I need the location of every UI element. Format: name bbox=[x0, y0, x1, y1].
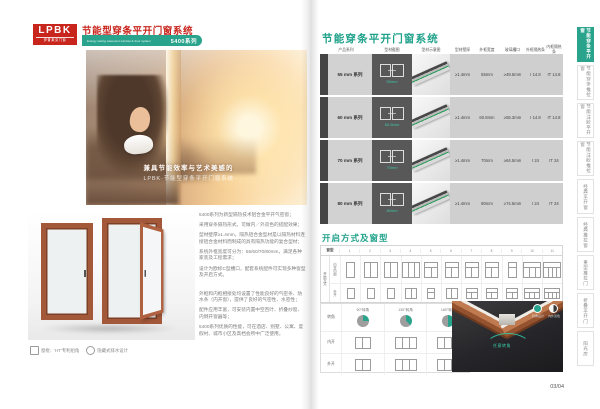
spec-value: ≥49.5mm bbox=[499, 72, 526, 77]
window-diagram bbox=[347, 288, 355, 299]
window-grid-cell bbox=[481, 256, 501, 283]
window-pane bbox=[509, 268, 516, 277]
window-diagram bbox=[523, 262, 541, 278]
window-pane bbox=[348, 289, 354, 298]
inward-opening-row: 内开内倒 bbox=[329, 256, 562, 283]
column-header: 玻璃槽口 bbox=[499, 48, 526, 53]
spec-value: ≥1.4mm bbox=[450, 72, 475, 77]
window-diagram bbox=[465, 262, 479, 278]
window-grid-cell bbox=[441, 284, 461, 302]
body-paragraph: 配件应用丰富，可安装内置中空百叶、折叠纱窗、内倒开窗器等； bbox=[199, 307, 306, 320]
window-grid-cell bbox=[441, 256, 461, 283]
window-pane bbox=[415, 263, 420, 277]
window-pane bbox=[368, 289, 374, 298]
feature-badge-label: 转角设计 bbox=[532, 314, 544, 318]
window-diagram bbox=[346, 262, 355, 278]
corner-angle-icon bbox=[533, 304, 542, 313]
body-paragraph: 5400系列优质的性能，可在酒店、别墅、公寓、度假村、城市小区及高档会所中广泛使… bbox=[199, 324, 306, 337]
window-grid-cell bbox=[502, 256, 522, 283]
window-pane bbox=[557, 293, 560, 298]
product-caption: 窗框：'HT'专利组角隐藏式排水设计 bbox=[30, 346, 128, 355]
spec-values: ≥1.4mm80mm≥74.5mmI 24IT 24 bbox=[450, 183, 563, 224]
window-type-code: 8 bbox=[481, 249, 501, 253]
window-diagram bbox=[355, 359, 371, 371]
window-handle bbox=[84, 270, 86, 277]
profile-sketch-icon bbox=[379, 148, 405, 164]
profile-3d-image bbox=[412, 104, 450, 128]
spec-value: ≥1.4mm bbox=[450, 158, 475, 163]
spec-value: I 14.8 bbox=[526, 72, 545, 77]
sidebar-tab: 折叠平开门 bbox=[577, 293, 594, 328]
sidebar-tab: 节能注胶推拉窗 bbox=[577, 141, 594, 176]
profile-photo-cell bbox=[412, 54, 450, 95]
angle-pie-icon bbox=[400, 315, 412, 327]
window-pane bbox=[410, 338, 416, 348]
window-diagram bbox=[544, 288, 560, 299]
feature-badge: 内外双色 bbox=[548, 304, 560, 318]
corner-joint-icon bbox=[30, 346, 39, 355]
product-photo bbox=[28, 210, 195, 340]
sidebar-tab: 节能穿条平开窗 bbox=[577, 27, 594, 62]
window-pane bbox=[536, 268, 541, 277]
body-paragraph: 5400系列为新型隔热技术铝合金平开气密窗； bbox=[199, 212, 306, 219]
brand-logo: LPBK 伊普莱克门窗 bbox=[33, 24, 77, 45]
window-diagram bbox=[424, 262, 438, 278]
casement-window-open-sash bbox=[140, 222, 163, 320]
window-pane bbox=[472, 293, 477, 298]
corner-joint-block bbox=[499, 314, 515, 325]
window-grid-cell bbox=[380, 284, 400, 302]
body-paragraph: 采用穿条隔热形式，可做内／外双色的搭配效果； bbox=[199, 222, 306, 229]
hero-caption-line1: 兼具节能效率与艺术美感的 bbox=[143, 162, 242, 172]
series-cell: 80 mm 系列 bbox=[328, 183, 372, 224]
window-grid-cell bbox=[461, 256, 481, 283]
window-grid-cell bbox=[340, 256, 360, 283]
window-type-code: 1 bbox=[339, 249, 359, 253]
window-type-grid: 窗型 1234567891011 开启方式 内开内倒 外开 bbox=[320, 245, 563, 303]
window-grid-cell bbox=[401, 256, 421, 283]
window-type-code: 10 bbox=[521, 249, 541, 253]
corner-type-table: 转角90°转角135°转角180°转角内开外开 bbox=[320, 303, 470, 373]
window-handle bbox=[144, 270, 145, 277]
window-grid-cell bbox=[542, 284, 562, 302]
product-caption-label: 隐藏式排水设计 bbox=[97, 348, 128, 354]
body-text: 5400系列为新型隔热技术铝合金平开气密窗；采用穿条隔热形式，可做内／外双色的搭… bbox=[199, 212, 306, 341]
sidebar-tab: 阳光房 bbox=[577, 331, 594, 366]
angle-arrow-label: 任意转角 bbox=[493, 343, 511, 349]
row-accent-strip bbox=[320, 97, 328, 138]
window-grid-cell bbox=[461, 284, 481, 302]
window-diagram bbox=[395, 359, 417, 371]
window-pane bbox=[347, 263, 354, 277]
spec-value: ≥74.5mm bbox=[499, 201, 526, 206]
spec-value: ≥64.5mm bbox=[499, 158, 526, 163]
spec-value: ≥55.3mm bbox=[499, 115, 526, 120]
outward-corner-row: 外开 bbox=[321, 353, 469, 375]
outward-opening-row: 外开 bbox=[329, 283, 562, 302]
spec-value: ≥1.4mm bbox=[450, 201, 475, 206]
corner-row-label: 转角 bbox=[321, 304, 341, 331]
table-row: 70 mm 系列70mm≥1.4mm70mm≥64.5mmI 24IT 24 bbox=[320, 140, 563, 181]
spec-value: I 24 bbox=[526, 158, 545, 163]
window-pane bbox=[403, 338, 410, 348]
window-pane bbox=[472, 268, 478, 277]
inward-corner-row: 内开 bbox=[321, 331, 469, 353]
column-header: 型材壁厚 bbox=[450, 48, 475, 53]
window-pane bbox=[513, 293, 518, 298]
window-diagram bbox=[367, 288, 375, 299]
spec-value: 80mm bbox=[475, 201, 499, 206]
corner-row-label: 内开 bbox=[321, 332, 341, 353]
window-pane bbox=[371, 263, 377, 277]
column-header: 型材示意图 bbox=[412, 48, 450, 53]
dual-color-icon bbox=[549, 304, 558, 313]
window-diagram bbox=[427, 288, 435, 299]
row-label-outward: 外开 bbox=[329, 284, 340, 302]
window-diagram bbox=[485, 262, 499, 278]
page-gutter bbox=[301, 0, 319, 409]
window-diagram bbox=[364, 262, 378, 278]
spec-value: 60.8mm bbox=[475, 115, 499, 120]
window-grid-cell bbox=[401, 284, 421, 302]
window-grid-cell bbox=[380, 256, 400, 283]
hero-caption: 兼具节能效率与艺术美感的 LPBK·节能型穿条平开门窗系统··· bbox=[143, 162, 242, 182]
hero-caption-line2: LPBK·节能型穿条平开门窗系统··· bbox=[143, 174, 242, 182]
window-pane bbox=[396, 338, 403, 348]
window-diagram bbox=[446, 288, 458, 299]
sidebar-tab: 节能穿条推拉窗 bbox=[577, 65, 594, 100]
feature-badge: 转角设计 bbox=[532, 304, 544, 318]
column-header: 型材截图 bbox=[372, 48, 412, 53]
spec-value: ≥1.4mm bbox=[450, 115, 475, 120]
dimension-label: 80mm bbox=[372, 208, 412, 213]
window-pane bbox=[396, 360, 403, 370]
window-grid-body: 开启方式 内开内倒 外开 bbox=[321, 256, 562, 302]
title-english-subtitle: Energy saving casement window & door sys… bbox=[87, 39, 151, 43]
profile-sketch-icon bbox=[379, 191, 405, 207]
window-diagram bbox=[466, 288, 478, 299]
window-grid-cell bbox=[360, 256, 380, 283]
window-pane bbox=[412, 289, 417, 298]
spec-values: ≥1.4mm60.8mm≥55.3mmI 14.8IT 14.8 bbox=[450, 97, 563, 138]
spec-values: ≥1.4mm70mm≥64.5mmI 24IT 24 bbox=[450, 140, 563, 181]
sidebar-tab: 节能注胶平开窗 bbox=[577, 103, 594, 138]
window-grid-cell bbox=[421, 256, 441, 283]
spec-value: 70mm bbox=[475, 158, 499, 163]
spec-value: IT 24 bbox=[545, 158, 563, 163]
sidebar-tab: 重型推拉门 bbox=[577, 255, 594, 290]
dimension-label: 60.8mm bbox=[372, 122, 412, 127]
window-grid-header: 窗型 1234567891011 bbox=[321, 246, 562, 256]
window-type-code: 9 bbox=[501, 249, 521, 253]
window-type-code: 3 bbox=[380, 249, 400, 253]
row-accent-strip bbox=[320, 140, 328, 181]
window-grid-corner-header: 窗型 bbox=[321, 248, 339, 253]
spec-value: I 24 bbox=[526, 201, 545, 206]
series-cell: 55 mm 系列 bbox=[328, 54, 372, 95]
profile-table-head: 产品系列型材截图型材示意图型材壁厚外框宽度玻璃槽口外框隔热条内框隔热条 bbox=[320, 46, 563, 54]
feature-badge-label: 内外双色 bbox=[548, 314, 560, 318]
casement-window-closed bbox=[41, 223, 93, 320]
corner-angle-row: 转角90°转角135°转角180°转角 bbox=[321, 304, 469, 331]
row-accent-strip bbox=[320, 183, 328, 224]
window-type-code: 11 bbox=[542, 249, 562, 253]
body-paragraph: 外框和内框相接处均设置了性能良好的气密条、防水条（内开窗），提供了良好的气密性、… bbox=[199, 291, 306, 304]
profile-drawing-cell: 60.8mm bbox=[372, 97, 412, 138]
profile-drawing-cell: 70mm bbox=[372, 140, 412, 181]
corner-diagram-cell bbox=[341, 332, 384, 353]
window-pane bbox=[356, 338, 364, 348]
window-pane bbox=[492, 293, 497, 298]
corner-window-photo: 任意转角 转角设计内外双色 bbox=[452, 301, 563, 372]
corner-diagram-cell bbox=[341, 354, 384, 375]
window-diagram bbox=[405, 288, 417, 299]
row-accent-strip bbox=[320, 54, 328, 95]
window-pane bbox=[356, 360, 364, 370]
dimension-label: 70mm bbox=[372, 165, 412, 170]
window-diagram bbox=[524, 288, 540, 299]
window-diagram bbox=[402, 262, 420, 278]
window-pane bbox=[410, 360, 416, 370]
profile-drawing-cell: 80mm bbox=[372, 183, 412, 224]
window-pane bbox=[438, 360, 445, 370]
window-pane bbox=[452, 289, 457, 298]
series-banner: Energy saving casement window & door sys… bbox=[82, 35, 202, 46]
table-row: 55 mm 系列55mm≥1.4mm55mm≥49.5mmI 14.8IT 14… bbox=[320, 54, 563, 95]
corner-row-label: 外开 bbox=[321, 354, 341, 375]
angle-pie-icon bbox=[357, 315, 369, 327]
spec-value: 55mm bbox=[475, 72, 499, 77]
window-pane bbox=[452, 268, 458, 277]
window-diagram bbox=[508, 262, 517, 278]
series-tag: 5400系列 bbox=[171, 37, 197, 45]
window-pane bbox=[428, 293, 434, 298]
window-grid-cell bbox=[421, 284, 441, 302]
catalog-spread: LPBK 伊普莱克门窗 节能型穿条平开门窗系统 Energy saving ca… bbox=[0, 0, 600, 409]
window-pane bbox=[388, 289, 394, 298]
corner-angle-cell: 135°转角 bbox=[384, 304, 427, 331]
section-title-system: 节能穿条平开门窗系统 bbox=[322, 31, 439, 46]
window-diagram bbox=[506, 288, 518, 299]
window-grid-rows: 内开内倒 外开 bbox=[329, 256, 562, 302]
spec-value: IT 14.8 bbox=[545, 115, 563, 120]
brand-logo-subtext: 伊普莱克门窗 bbox=[36, 37, 74, 43]
body-paragraph: 设计为欧标C型槽口，配套系统配件可实现多种窗型及开启方式。 bbox=[199, 266, 306, 279]
spec-value: I 14.8 bbox=[526, 115, 545, 120]
column-header: 产品系列 bbox=[320, 48, 372, 53]
window-diagram bbox=[384, 262, 398, 278]
window-shadow bbox=[40, 324, 180, 333]
window-pane bbox=[535, 293, 539, 298]
column-header: 外框隔热条 bbox=[526, 48, 545, 53]
profile-photo-cell bbox=[412, 140, 450, 181]
sidebar-nav: 节能穿条平开窗节能穿条推拉窗节能注胶平开窗节能注胶推拉窗经典平开窗经典推拉窗重型… bbox=[577, 27, 594, 369]
body-paragraph: 系统外框宽度可分为：55/60/70/80mm，满足各种家装及工程需求； bbox=[199, 249, 306, 262]
sidebar-tab: 经典推拉窗 bbox=[577, 217, 594, 252]
sidebar-tab: 经典平开窗 bbox=[577, 179, 594, 214]
row-label-inward: 内开内倒 bbox=[329, 256, 340, 283]
window-type-code: 4 bbox=[400, 249, 420, 253]
opening-mode-label: 开启方式 bbox=[321, 256, 329, 302]
window-diagram bbox=[445, 262, 459, 278]
window-pane bbox=[363, 338, 370, 348]
window-type-code: 6 bbox=[440, 249, 460, 253]
profile-photo-cell bbox=[412, 183, 450, 224]
series-cell: 70 mm 系列 bbox=[328, 140, 372, 181]
page-number: 03/04 bbox=[536, 384, 564, 390]
product-caption-item: 隐藏式排水设计 bbox=[86, 346, 128, 355]
window-pane bbox=[557, 268, 560, 277]
angle-label: 90°转角 bbox=[357, 308, 370, 313]
profile-table-body: 55 mm 系列55mm≥1.4mm55mm≥49.5mmI 14.8IT 14… bbox=[320, 54, 563, 224]
product-caption-label: 窗框：'HT'专利组角 bbox=[41, 348, 79, 354]
window-pane bbox=[432, 268, 438, 277]
spec-value: IT 14.8 bbox=[545, 72, 563, 77]
window-grid-cell bbox=[340, 284, 360, 302]
profile-3d-image bbox=[412, 147, 450, 171]
corner-diagram-cell bbox=[384, 354, 427, 375]
profile-drawing-cell: 55mm bbox=[372, 54, 412, 95]
window-grid-cell bbox=[522, 284, 542, 302]
profile-3d-image bbox=[412, 61, 450, 85]
table-row: 80 mm 系列80mm≥1.4mm80mm≥74.5mmI 24IT 24 bbox=[320, 183, 563, 224]
brand-logo-text: LPBK bbox=[33, 24, 77, 37]
product-caption-item: 窗框：'HT'专利组角 bbox=[30, 346, 79, 355]
window-pane bbox=[363, 360, 370, 370]
window-grid-cell bbox=[522, 256, 542, 283]
body-paragraph: 型材壁厚≥1.4mm，隔热铝合金型材是以隔热材料连接铝合金材料而制成的具有隔热功… bbox=[199, 232, 306, 245]
window-type-code: 7 bbox=[461, 249, 481, 253]
profile-table: 产品系列型材截图型材示意图型材壁厚外框宽度玻璃槽口外框隔热条内框隔热条 55 m… bbox=[320, 46, 563, 226]
window-pane bbox=[403, 360, 410, 370]
feature-badges: 转角设计内外双色 bbox=[532, 304, 560, 318]
spec-value: IT 24 bbox=[545, 201, 563, 206]
section-title-opening: 开启方式及窗型 bbox=[322, 232, 389, 244]
window-grid-cell bbox=[502, 284, 522, 302]
window-pane bbox=[492, 268, 498, 277]
column-header: 外框宽度 bbox=[475, 48, 499, 53]
window-diagram bbox=[395, 337, 417, 349]
window-grid-cell bbox=[481, 284, 501, 302]
profile-photo-cell bbox=[412, 97, 450, 138]
angle-label: 135°转角 bbox=[398, 308, 413, 313]
window-type-code: 5 bbox=[420, 249, 440, 253]
window-diagram bbox=[486, 288, 498, 299]
window-diagram bbox=[543, 262, 561, 278]
profile-3d-image bbox=[412, 190, 450, 214]
window-grid-cell bbox=[360, 284, 380, 302]
window-type-code: 2 bbox=[359, 249, 379, 253]
corner-angle-cell: 90°转角 bbox=[341, 304, 384, 331]
profile-sketch-icon bbox=[379, 62, 405, 78]
profile-sketch-icon bbox=[379, 105, 405, 121]
hero-photo: 兼具节能效率与艺术美感的 LPBK·节能型穿条平开门窗系统··· bbox=[86, 50, 307, 205]
dimension-label: 55mm bbox=[372, 79, 412, 84]
table-row: 60 mm 系列60.8mm≥1.4mm60.8mm≥55.3mmI 14.8I… bbox=[320, 97, 563, 138]
window-diagram bbox=[355, 337, 371, 349]
drain-icon bbox=[86, 346, 95, 355]
corner-diagram-cell bbox=[384, 332, 427, 353]
window-pane bbox=[391, 263, 397, 277]
spec-values: ≥1.4mm55mm≥49.5mmI 14.8IT 14.8 bbox=[450, 54, 563, 95]
series-cell: 60 mm 系列 bbox=[328, 97, 372, 138]
window-pane bbox=[438, 338, 445, 348]
window-diagram bbox=[387, 288, 395, 299]
window-grid-cell bbox=[542, 256, 562, 283]
